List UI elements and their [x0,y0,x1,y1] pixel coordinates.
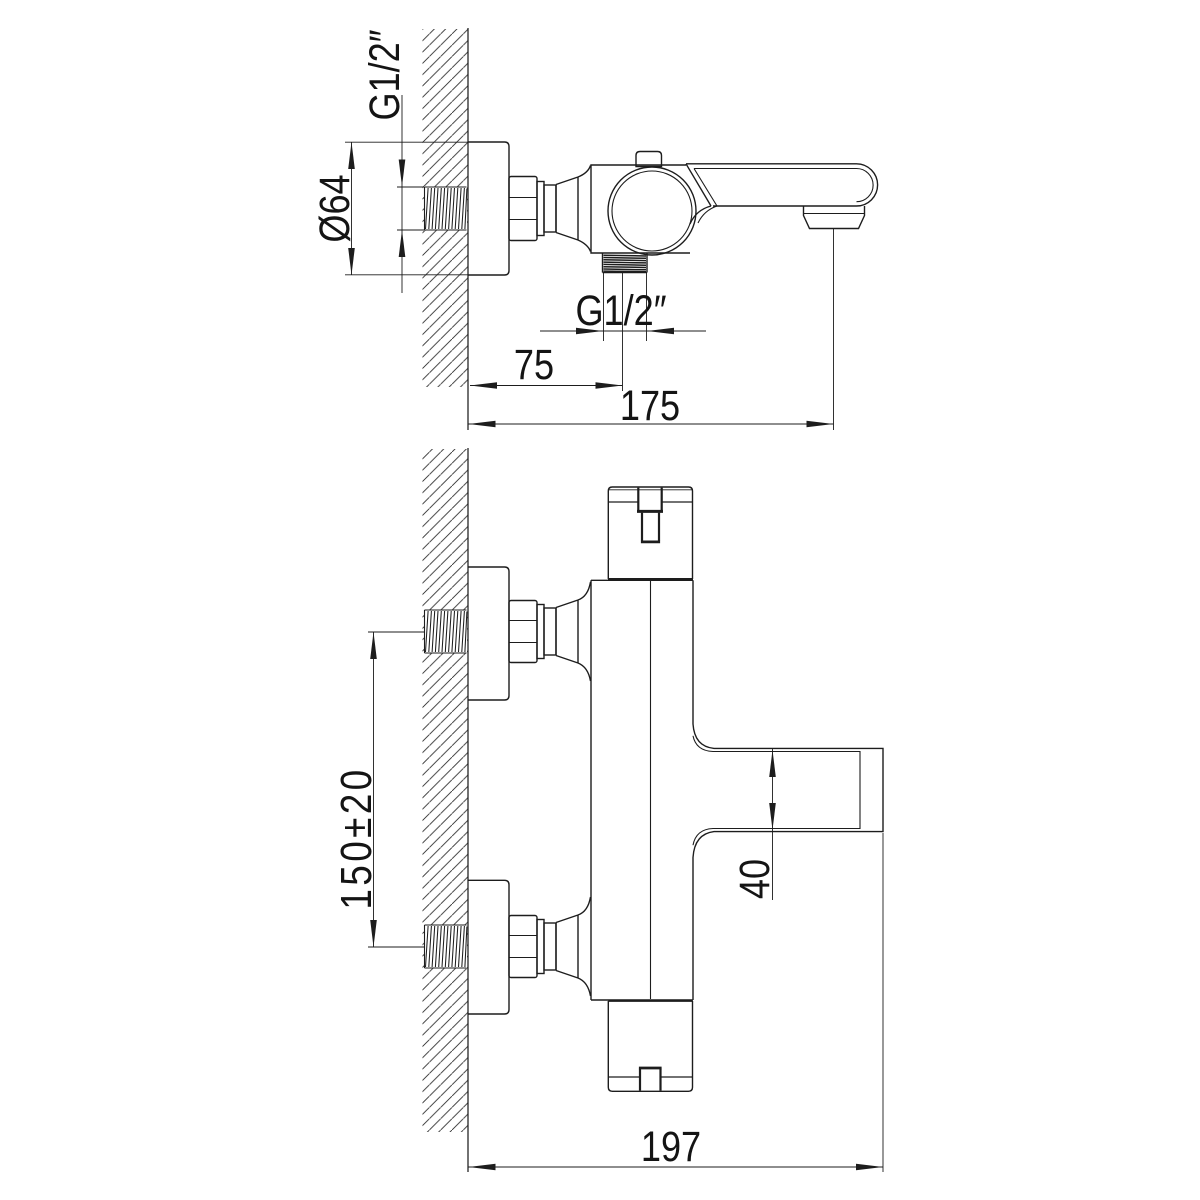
hex-nut [509,177,537,241]
faucet-dimension-drawing: G1/2″ Ø64 G1/2″ 75 175 [0,0,1200,1200]
spout-front [693,724,883,858]
thermostat-body-column [591,579,693,1001]
dim-outlet-offset-label: 75 [514,341,554,389]
dim-wall-thread-label: G1/2″ [361,29,409,120]
arrowhead [348,142,355,169]
escutcheon-flange-bottom [469,880,510,1014]
escutcheon-flange-top [469,567,510,700]
spout-aerator [804,206,865,229]
hex-nut [509,916,537,978]
spout-lever [686,164,878,229]
connection-fittings-front [509,582,591,996]
knob-slot [638,488,661,511]
dim-inlet-spacing-label: 150±20 [331,766,381,909]
escutcheon-flange [469,142,510,275]
hex-nut [509,601,537,663]
dim-spout-reach-label: 175 [620,382,680,430]
dim-outlet-thread-label: G1/2″ [575,287,666,335]
knob-slot [640,1069,661,1091]
dim-spout-width-label: 40 [731,859,779,899]
side-view: G1/2″ Ø64 G1/2″ 75 175 [311,28,878,430]
front-view: 150±20 40 197 [331,448,883,1172]
dim-overall-depth-label: 197 [641,1123,701,1171]
cartridge-circle [608,167,696,255]
shower-outlet-stub [603,253,648,273]
wall-thread-pipe [424,187,467,231]
diverter-knob [636,152,662,167]
faucet-body-side [591,152,696,256]
side-view-dimensions: G1/2″ Ø64 G1/2″ 75 175 [311,29,833,430]
technical-drawing-sheet: G1/2″ Ø64 G1/2″ 75 175 [0,0,1200,1200]
wall-section-hatch-lower [423,448,469,1172]
connection-fittings [509,166,591,252]
flow-knob [608,1001,692,1091]
arrowhead [370,632,377,659]
dim-flange-diameter-label: Ø64 [311,174,359,242]
temperature-knob [608,487,692,579]
front-view-dimensions: 150±20 40 197 [331,632,883,1172]
